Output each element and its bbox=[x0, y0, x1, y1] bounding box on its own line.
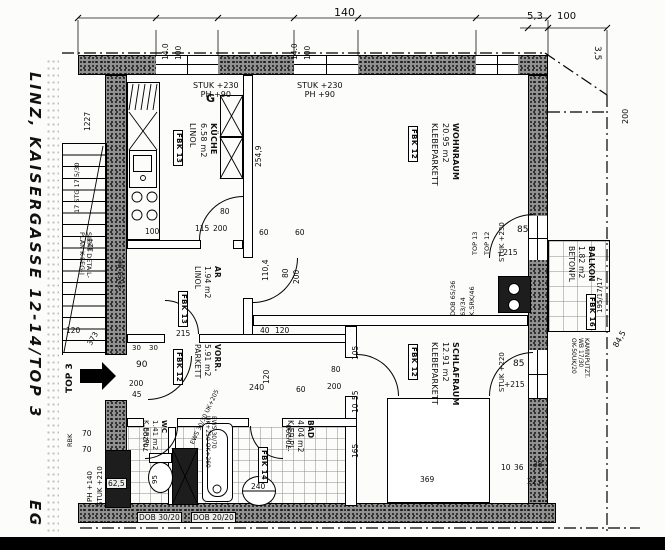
ann-dim-14-0-a: 14.0 bbox=[162, 43, 170, 60]
ann-dim-30-a: 30 bbox=[132, 345, 141, 353]
fbk-box-wohnraum: FBK 12 bbox=[408, 126, 418, 162]
ann-boiler-240: 240 bbox=[251, 483, 265, 491]
room-wohnraum-rfloor: KLEBEPARKETT bbox=[429, 123, 439, 186]
ann-dim-55: 55 bbox=[352, 390, 360, 400]
ann-dob-20-20: DOB 20/20 bbox=[191, 512, 236, 523]
ann-dim-120-vorr: 120 bbox=[263, 370, 271, 384]
ann-dim-120-stair: 120 bbox=[66, 327, 80, 335]
ann-gas-mark: G bbox=[206, 93, 215, 105]
room-label-bad: BAD4.04 m2K.ER.PL. bbox=[286, 420, 315, 453]
ann-stuk-210: STUK +210 bbox=[97, 466, 105, 506]
room-abstellraum-rarea: 1.94 m2 bbox=[203, 266, 213, 299]
ann-door-vorr-90: 90 bbox=[136, 361, 147, 371]
ann-balkontuer-215: +215 bbox=[497, 249, 518, 257]
ann-dim-45: 45 bbox=[132, 391, 142, 399]
ann-dim-369: 369 bbox=[420, 476, 434, 484]
ann-dim-62-5: 62,5 bbox=[106, 478, 127, 489]
ann-door-schlaf-80: 80 bbox=[331, 366, 341, 374]
ann-door-schlaf-200: 200 bbox=[327, 383, 341, 391]
ann-dim-3-5: 3,5 bbox=[591, 46, 601, 60]
ann-top-12: TOP 12 bbox=[484, 232, 491, 255]
ann-fenster-215: +215 bbox=[504, 381, 525, 389]
ann-dim-100-a: 100 bbox=[175, 46, 183, 60]
ann-stuk-wohnraum: STUK +230 PH +90 bbox=[297, 82, 343, 99]
ann-door-wohn-200: 200 bbox=[293, 270, 301, 284]
ann-dim-240: 240 bbox=[249, 384, 264, 393]
ann-dim-195-17: 195/17/17 bbox=[597, 277, 605, 313]
ann-kaminputz: KAMINPUTZT. WB 17/30 OK-50UK/20 bbox=[570, 338, 589, 378]
ann-dim-215: 215 bbox=[176, 330, 190, 338]
room-bad-rarea: 4.04 m2 bbox=[296, 420, 306, 453]
ann-dim-165: 165 bbox=[352, 444, 360, 458]
ann-stuk-kueche: STUK +230 PH +90 bbox=[193, 82, 239, 99]
ann-dim-60-vorr: 60 bbox=[296, 386, 306, 394]
ann-balkontuer-85: 85 bbox=[517, 226, 528, 236]
ann-stg-17: 17 STG 17,5/30 bbox=[74, 163, 81, 213]
ann-dim-36: 36 bbox=[514, 464, 524, 472]
ann-top3-arrow-label: TOP 3 bbox=[66, 363, 76, 393]
ann-dim-324: 324 bbox=[88, 239, 96, 252]
scan-bottom-bar bbox=[0, 537, 665, 550]
room-abstellraum-rfloor: LINOL bbox=[193, 266, 203, 299]
room-schlafraum-rname: SCHLAFRAUM bbox=[450, 342, 460, 406]
room-abstellraum-rname: AR bbox=[212, 266, 222, 299]
ann-dim-14-0-b: 14.0 bbox=[291, 43, 299, 60]
ann-dim-60-a: 60 bbox=[259, 229, 269, 237]
room-label-kueche: KÜCHE6.58 m2LINOL bbox=[187, 123, 218, 158]
room-label-wc: WC1.41 m2K.ER.PL. bbox=[141, 420, 168, 450]
room-kueche-rfloor: LINOL bbox=[187, 123, 197, 158]
floor-plan-page: LINZ, KAISERGASSE 12-14/TOP 3 EG bbox=[0, 0, 665, 550]
ann-dim-70-a: 70 bbox=[82, 430, 92, 438]
ann-dim-5-3: 5,3 bbox=[527, 12, 543, 23]
ann-dim-63-34: 63/34 bbox=[460, 297, 467, 316]
room-vorraum-rarea: 5.91 m2 bbox=[203, 344, 213, 378]
ann-top-13: TOP 13 bbox=[472, 232, 479, 255]
fbk-box-schlafraum: FBK 12 bbox=[408, 344, 418, 380]
room-wc-rarea: 1.41 m2 bbox=[150, 420, 159, 450]
ann-dim-70-b: 70 bbox=[82, 446, 92, 454]
ann-ph-140: PH +140 bbox=[87, 471, 95, 502]
room-schlafraum-rarea: 12.91 m2 bbox=[439, 342, 449, 406]
ann-wc-95: 95 bbox=[152, 475, 160, 484]
fbk-box-vorraum: FBK 12 bbox=[173, 349, 183, 385]
room-wohnraum-rarea: 20.95 m2 bbox=[439, 123, 449, 186]
ann-db-15-15: DB 15/15 bbox=[116, 259, 123, 289]
ann-door-vorr-200: 200 bbox=[129, 380, 143, 388]
room-label-wohnraum: WOHNRAUM20.95 m2KLEBEPARKETT bbox=[429, 123, 460, 186]
ann-dob-65-36: DOB 65/36 bbox=[450, 281, 457, 316]
room-wc-rname: WC bbox=[159, 420, 168, 450]
ann-dob-30-20: DOB 30/20 bbox=[137, 512, 182, 523]
ann-dim-30-b: 30 bbox=[149, 345, 158, 353]
room-vorraum-rname: VORR. bbox=[212, 344, 222, 378]
room-balkon-rname: BALKON bbox=[586, 246, 596, 282]
room-label-vorraum: VORR.5.91 m2PARKETT bbox=[193, 344, 222, 378]
fbk-box-kueche: FBK 13 bbox=[173, 130, 183, 166]
ann-dim-105: 105 bbox=[352, 346, 360, 360]
ann-dim-100-right: 100 bbox=[557, 12, 576, 23]
room-wc-rfloor: K.ER.PL. bbox=[141, 420, 150, 450]
room-kueche-rarea: 6.58 m2 bbox=[197, 123, 207, 158]
ann-dim-10b: 10 bbox=[501, 464, 511, 472]
ann-dim-110-4: 110,4 bbox=[262, 260, 270, 281]
ann-rbk: RBK bbox=[67, 434, 74, 447]
fbk-box-abstellraum: FBK 13 bbox=[178, 291, 188, 327]
fbk-box-bad: FBK 14 bbox=[258, 447, 268, 483]
ann-dim-115: 115 bbox=[195, 225, 209, 233]
fbk-box-balkon: FBK 16 bbox=[586, 294, 596, 330]
ann-dim-60-b: 60 bbox=[295, 229, 305, 237]
room-label-balkon: BALKON1.82 m2BETONPL bbox=[567, 246, 596, 282]
ann-k-srk-46: K.SRK/46 bbox=[469, 286, 476, 316]
room-label-abstellraum: AR1.94 m2LINOL bbox=[193, 266, 222, 299]
ann-dim-254-9: 254,9 bbox=[255, 146, 263, 167]
room-kueche-rname: KÜCHE bbox=[208, 123, 218, 158]
entrance-arrow bbox=[80, 362, 116, 390]
ann-dim-200-right: 200 bbox=[622, 109, 631, 124]
ann-dim-38: 38 bbox=[533, 461, 543, 469]
room-vorraum-rfloor: PARKETT bbox=[193, 344, 203, 378]
ann-dim-140: 140 bbox=[334, 7, 355, 19]
ann-dim-120-wohn: 120 bbox=[275, 327, 289, 335]
room-wohnraum-rname: WOHNRAUM bbox=[450, 123, 460, 186]
ann-dim-100-b: 100 bbox=[304, 46, 312, 60]
room-schlafraum-rfloor: KLEBEPARKETT bbox=[429, 342, 439, 406]
room-bad-rname: BAD bbox=[305, 420, 315, 453]
ann-door-wohn-80: 80 bbox=[282, 268, 290, 278]
room-balkon-rarea: 1.82 m2 bbox=[577, 246, 587, 282]
ann-fenster-85: 85 bbox=[513, 360, 524, 370]
room-balkon-rfloor: BETONPL bbox=[567, 246, 577, 282]
room-label-schlafraum: SCHLAFRAUM12.91 m2KLEBEPARKETT bbox=[429, 342, 460, 406]
room-bad-rfloor: K.ER.PL. bbox=[286, 420, 296, 453]
ann-door-kueche-200: 200 bbox=[213, 225, 227, 233]
ann-dim-10: 10 bbox=[352, 403, 360, 413]
ann-dim-40: 40 bbox=[260, 327, 270, 335]
ann-door-kueche-80: 80 bbox=[220, 208, 230, 216]
ann-dim-100-kueche: 100 bbox=[145, 228, 159, 236]
ann-dim-1227: 1227 bbox=[84, 112, 92, 131]
ann-dim-22-4: 22,4 bbox=[527, 478, 544, 486]
